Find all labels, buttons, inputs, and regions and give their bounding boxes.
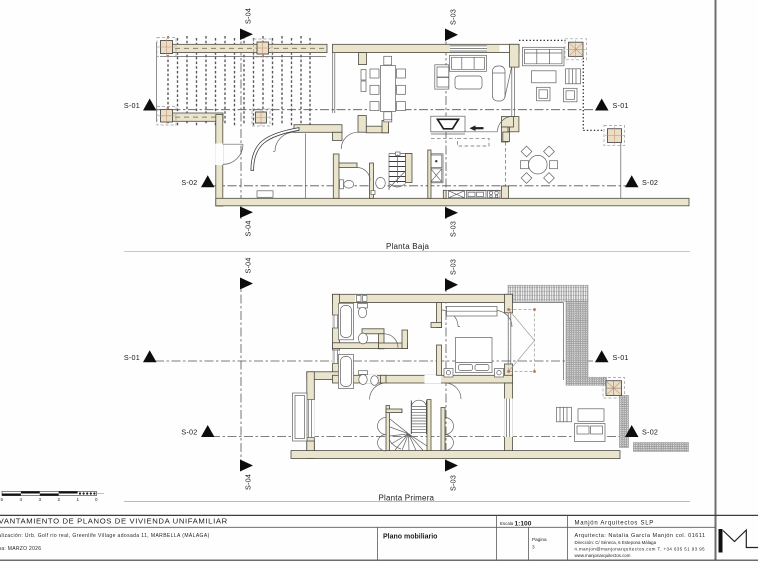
svg-text:S-03: S-03 [449, 259, 458, 275]
svg-text:Fecha: MARZO 2026: Fecha: MARZO 2026 [0, 546, 41, 552]
svg-text:S-04: S-04 [244, 8, 253, 24]
svg-text:S-02: S-02 [181, 428, 197, 437]
svg-text:S-01: S-01 [124, 101, 140, 110]
svg-text:S-04: S-04 [244, 220, 253, 236]
svg-text:Escala: Escala [500, 521, 514, 526]
svg-text:1: 1 [77, 497, 80, 502]
svg-text:S-04: S-04 [244, 474, 253, 490]
svg-text:www.manjonarquitectos.com: www.manjonarquitectos.com [575, 553, 631, 558]
svg-text:S-03: S-03 [449, 475, 458, 491]
svg-text:Arquitecta: Natalia García Man: Arquitecta: Natalia García Manjón col. 0… [575, 533, 706, 539]
svg-text:Plano mobiliario: Plano mobiliario [383, 534, 437, 541]
svg-text:S-03: S-03 [449, 221, 458, 237]
svg-text:n.manjon@manjonarquitectos.com: n.manjon@manjonarquitectos.com T. +34 63… [575, 547, 706, 552]
svg-text:4: 4 [20, 497, 23, 502]
svg-text:5: 5 [1, 497, 4, 502]
svg-text:2: 2 [58, 497, 61, 502]
svg-text:Pagina: Pagina [532, 537, 547, 542]
svg-text:3: 3 [532, 545, 535, 550]
svg-text:S-01: S-01 [124, 353, 140, 362]
svg-text:Planta Baja: Planta Baja [386, 242, 429, 251]
svg-text:S-04: S-04 [244, 257, 253, 273]
svg-text:LEVANTAMIENTO DE PLANOS DE VIV: LEVANTAMIENTO DE PLANOS DE VIVIENDA UNIF… [0, 517, 228, 526]
svg-text:Planta Primera: Planta Primera [379, 493, 435, 502]
svg-text:Localización: Urb. Golf rio r: Localización: Urb. Golf rio real, Greenl… [0, 532, 210, 539]
svg-text:Dirección: C/ Séneca, 6 Estepo: Dirección: C/ Séneca, 6 Estepona Málaga [575, 540, 657, 545]
svg-text:S-02: S-02 [642, 178, 658, 187]
svg-text:S-03: S-03 [449, 9, 458, 25]
svg-text:S-01: S-01 [613, 353, 629, 362]
svg-text:S-01: S-01 [613, 101, 629, 110]
svg-text:0: 0 [95, 497, 98, 502]
svg-text:S-02: S-02 [181, 178, 197, 187]
svg-text:Manjón Arquitectos SLP: Manjón Arquitectos SLP [575, 521, 654, 527]
svg-text:1:100: 1:100 [515, 521, 532, 528]
svg-text:S-02: S-02 [642, 428, 658, 437]
svg-text:3: 3 [39, 497, 42, 502]
